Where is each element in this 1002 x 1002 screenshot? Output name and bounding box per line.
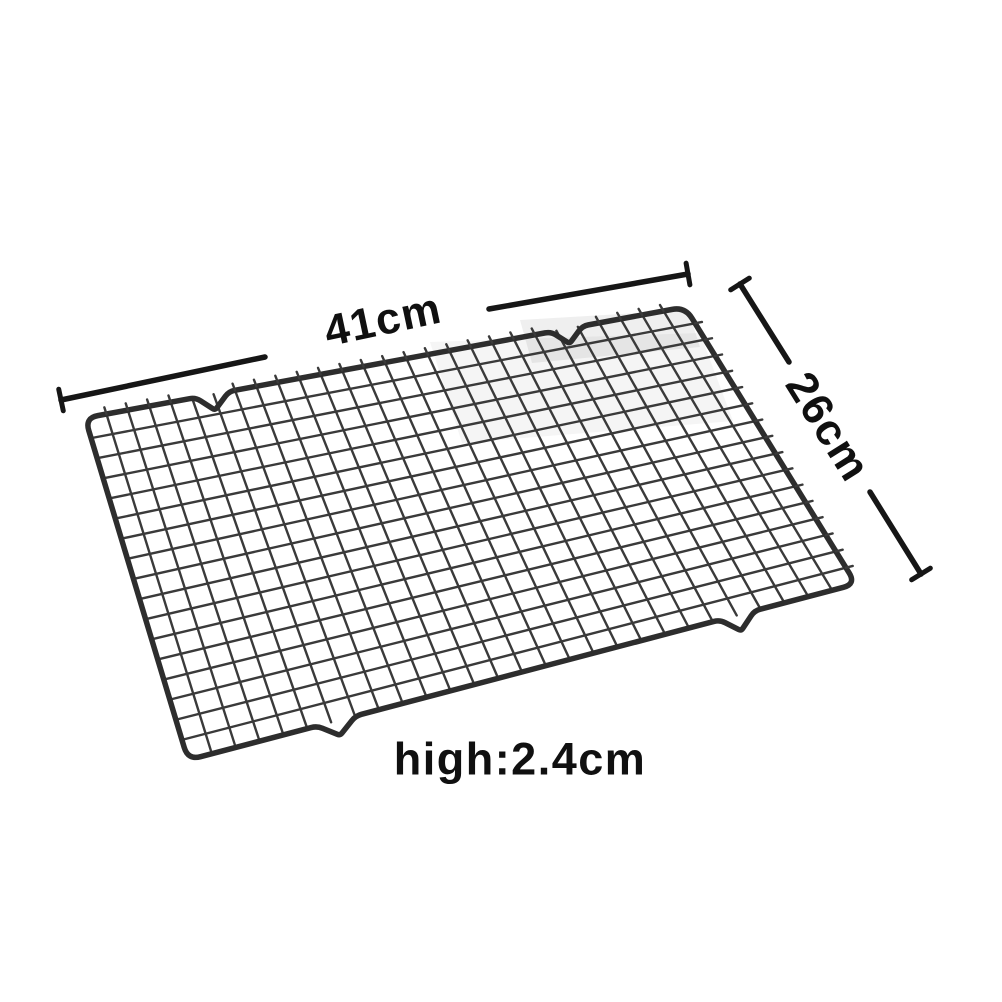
dimension-tick <box>686 263 690 285</box>
dimension-tick <box>59 389 64 411</box>
wire-stub-right <box>745 403 752 404</box>
wire-stub-right <box>715 355 722 356</box>
wire-stub-right <box>836 550 843 552</box>
wire-stub-right <box>755 420 762 421</box>
wire-stub-right <box>695 322 702 323</box>
dimension-line <box>870 492 921 574</box>
dimension-line <box>740 284 789 362</box>
wire-stub-right <box>765 436 772 438</box>
height-dimension-label: high:2.4cm <box>394 734 647 785</box>
grid-wire-horizontal <box>121 405 745 539</box>
wire-stub-right <box>806 501 813 503</box>
product-image: 41cm 26cm high:2.4cm <box>0 0 1002 1002</box>
dimension-line <box>61 357 265 400</box>
wire-stub-right <box>826 533 833 535</box>
grid-wire-vertical <box>106 414 211 754</box>
dimension-line <box>489 274 688 309</box>
wire-stub-right <box>786 468 793 470</box>
cooling-rack-illustration: 41cm 26cm high:2.4cm <box>0 0 1002 1002</box>
wire-stub-right <box>776 452 783 454</box>
wire-stub-right <box>816 517 823 519</box>
wire-stub-right <box>846 566 853 568</box>
grid-wire-vertical <box>664 311 833 590</box>
depth-dimension-label: 26cm <box>776 364 880 490</box>
grid-wire-horizontal <box>133 437 765 579</box>
width-dimension-label: 41cm <box>320 284 446 357</box>
wire-stub-right <box>735 387 742 388</box>
wire-stub-right <box>725 371 732 372</box>
wire-stub-right <box>705 338 712 339</box>
grid-wire-horizontal <box>140 454 776 599</box>
grid-wire-horizontal <box>109 372 725 498</box>
wire-stub-right <box>796 485 803 487</box>
